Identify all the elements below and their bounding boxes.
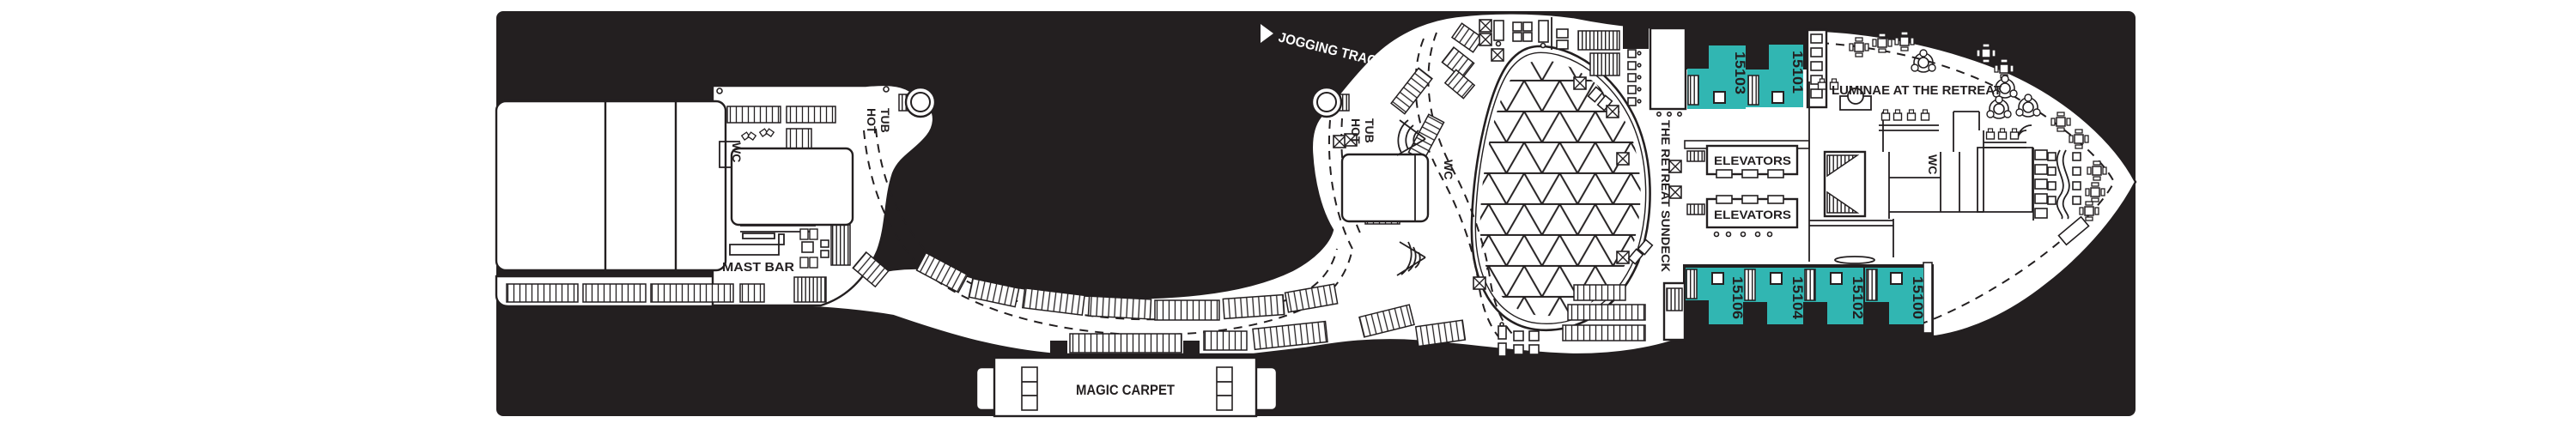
deck-plan: ELEVATORS ELEVATORS bbox=[0, 0, 2576, 429]
wc-mid-label: WC bbox=[1442, 160, 1455, 179]
stairs bbox=[1825, 152, 1865, 216]
hot-tub-port-label-line1: HOT bbox=[865, 108, 878, 134]
wc-bow-label: WC bbox=[1926, 154, 1940, 174]
deck-plan-page: ELEVATORS ELEVATORS bbox=[0, 0, 2576, 429]
mast-bar-label: MAST BAR bbox=[722, 260, 794, 275]
retreat-sundeck-label: THE RETREAT SUNDECK bbox=[1659, 120, 1673, 272]
hot-tub-starboard-label-line2: TUB bbox=[1363, 118, 1376, 143]
midship-wc-room bbox=[1342, 154, 1428, 221]
forward-structure bbox=[496, 101, 726, 270]
magic-carpet-platform: MAGIC CARPET bbox=[976, 358, 1277, 416]
luminae-label: LUMINAE AT THE RETREAT bbox=[1832, 83, 2002, 98]
magic-carpet-label: MAGIC CARPET bbox=[1076, 382, 1176, 398]
elevators-aft-label: ELEVATORS bbox=[1714, 208, 1791, 221]
svg-text:15100: 15100 bbox=[1910, 276, 1926, 319]
wc-wing-label: WC bbox=[730, 142, 744, 162]
hot-tub-port-label-line2: TUB bbox=[878, 108, 892, 133]
elevators-forward-label: ELEVATORS bbox=[1714, 154, 1791, 167]
hot-tub-starboard-label-line1: HOT bbox=[1349, 118, 1363, 144]
svg-text:15102: 15102 bbox=[1850, 276, 1866, 319]
svg-text:15101: 15101 bbox=[1789, 51, 1806, 94]
